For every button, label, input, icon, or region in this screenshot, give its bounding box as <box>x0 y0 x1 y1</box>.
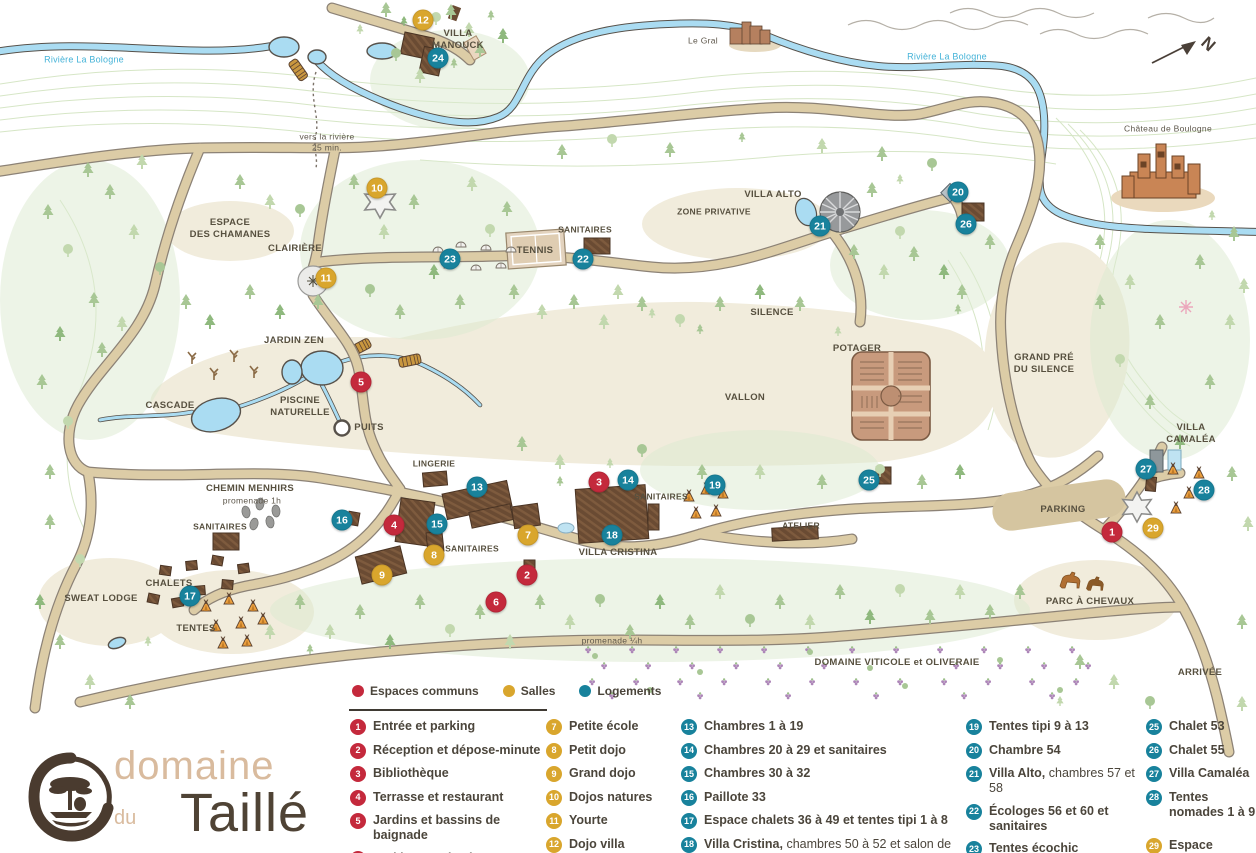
map-marker-18: 18 <box>602 525 623 546</box>
map-marker-1: 1 <box>1102 522 1123 543</box>
map-marker-12: 12 <box>413 10 434 31</box>
legend-column-1: 1Entrée et parking2Réception et dépose-m… <box>350 719 542 853</box>
legend-column-2: 7Petite école8Petit dojo9Grand dojo10Doj… <box>546 719 676 853</box>
legend-item-5: 5Jardins et bassins de baignade <box>350 813 542 843</box>
legend-item-29: 29Espace Camaléa <box>1146 838 1256 853</box>
legend-item-16: 16Paillote 33 <box>681 790 965 806</box>
legend-item-10: 10Dojos natures <box>546 790 676 806</box>
legend-column-5: 25Chalet 5326Chalet 5527Villa Camaléa28T… <box>1146 719 1256 853</box>
map-marker-14: 14 <box>618 470 639 491</box>
map-marker-21: 21 <box>810 216 831 237</box>
map-marker-27: 27 <box>1136 459 1157 480</box>
legend-key-dot <box>503 685 515 697</box>
map-marker-23: 23 <box>440 249 461 270</box>
legend-key-item: Espaces communs <box>352 684 479 698</box>
legend-item-15: 15Chambres 30 à 32 <box>681 766 965 782</box>
logo: domaine du Taillé <box>28 742 298 850</box>
map-marker-29: 29 <box>1143 518 1164 539</box>
legend-item-14: 14Chambres 20 à 29 et sanitaires <box>681 743 965 759</box>
legend-item-23: 23Tentes écochic <box>966 841 1146 853</box>
map-marker-26: 26 <box>956 214 977 235</box>
legend-key-item: Salles <box>503 684 556 698</box>
legend-item-8: 8Petit dojo <box>546 743 676 759</box>
map-marker-11: 11 <box>316 268 337 289</box>
map-marker-8: 8 <box>424 545 445 566</box>
legend-column-4: 19Tentes tipi 9 à 1320Chambre 5421Villa … <box>966 719 1146 853</box>
legend-item-9: 9Grand dojo <box>546 766 676 782</box>
logo-text-taille: Taillé <box>180 782 309 844</box>
legend-item-20: 20Chambre 54 <box>966 743 1146 759</box>
map-marker-25: 25 <box>859 470 880 491</box>
legend-item-18: 18Villa Cristina, chambres 50 à 52 et sa… <box>681 837 965 853</box>
map-marker-6: 6 <box>486 592 507 613</box>
legend-item-7: 7Petite école <box>546 719 676 735</box>
map-marker-15: 15 <box>427 514 448 535</box>
legend-item-3: 3Bibliothèque <box>350 766 542 782</box>
legend-key-dot <box>352 685 364 697</box>
legend-key-item: Logements <box>579 684 661 698</box>
map-marker-17: 17 <box>180 586 201 607</box>
legend-item-28: 28Tentes nomades 1 à 9 <box>1146 790 1256 820</box>
legend-item-11: 11Yourte <box>546 813 676 829</box>
map-marker-24: 24 <box>428 48 449 69</box>
map-marker-3: 3 <box>589 472 610 493</box>
legend-item-25: 25Chalet 53 <box>1146 719 1256 735</box>
map-marker-5: 5 <box>351 372 372 393</box>
map-marker-9: 9 <box>372 565 393 586</box>
legend-item-17: 17Espace chalets 36 à 49 et tentes tipi … <box>681 813 965 829</box>
map-marker-22: 22 <box>573 249 594 270</box>
legend-item-4: 4Terrasse et restaurant <box>350 790 542 806</box>
legend-divider <box>349 709 547 711</box>
legend-key-dot <box>579 685 591 697</box>
legend-item-26: 26Chalet 55 <box>1146 743 1256 759</box>
legend-item-27: 27Villa Camaléa <box>1146 766 1256 782</box>
legend-item-2: 2Réception et dépose-minute <box>350 743 542 759</box>
legend-item-1: 1Entrée et parking <box>350 719 542 735</box>
map-marker-4: 4 <box>384 515 405 536</box>
map-marker-10: 10 <box>367 178 388 199</box>
site-map-poster: N Rivière La BologneVILLA MANOUCKLe Gral… <box>0 0 1256 853</box>
map-marker-16: 16 <box>332 510 353 531</box>
legend-key: Espaces communsSallesLogements <box>352 684 661 698</box>
map-marker-13: 13 <box>467 477 488 498</box>
legend-item-22: 22Écologes 56 et 60 et sanitaires <box>966 804 1146 834</box>
legend-item-19: 19Tentes tipi 9 à 13 <box>966 719 1146 735</box>
legend-item-12: 12Dojo villa Manouck <box>546 837 676 853</box>
map-marker-2: 2 <box>517 565 538 586</box>
legend-column-3: 13Chambres 1 à 1914Chambres 20 à 29 et s… <box>681 719 965 853</box>
map-marker-20: 20 <box>948 182 969 203</box>
map-marker-19: 19 <box>705 475 726 496</box>
map-marker-7: 7 <box>518 525 539 546</box>
legend-item-13: 13Chambres 1 à 19 <box>681 719 965 735</box>
legend-item-21: 21Villa Alto, chambres 57 et 58 <box>966 766 1146 796</box>
map-marker-28: 28 <box>1194 480 1215 501</box>
logo-enso-icon <box>28 752 114 842</box>
